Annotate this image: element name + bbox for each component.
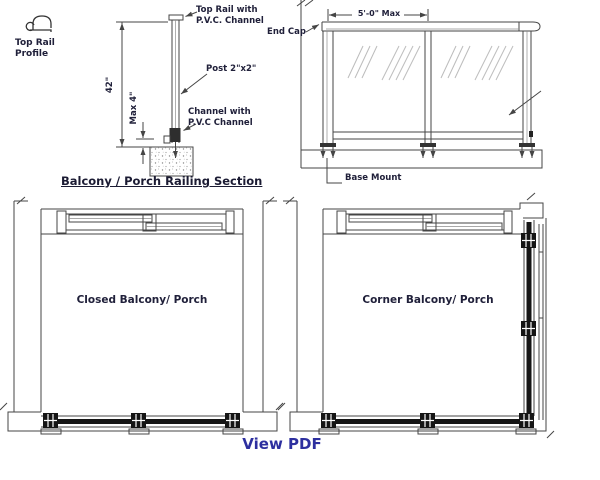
elevation-wall-and-deck [297,0,542,168]
post-callout: Post 2"x2" [206,64,276,75]
end-cap-callout: End Cap [252,27,306,38]
section-caption: Balcony / Porch Railing Section [61,174,262,188]
top-rail-profile-label: Top Rail Profile [15,38,63,61]
drawing-sheet: Top Rail Profile Top Rail with P.V.C. Ch… [0,0,600,480]
base-mount-callout: Base Mount [345,173,415,184]
section-dim-42 [116,22,168,147]
dim-bay-text: 5'-0" Max [338,9,420,18]
closed-balcony-label: Closed Balcony/ Porch [62,294,222,306]
closed-balcony-plan [0,197,285,434]
corner-balcony-label: Corner Balcony/ Porch [348,294,508,306]
elevation-posts [323,31,531,143]
plan2-right-railing [521,220,543,428]
plan2-sliding-door [337,211,512,233]
section-concrete-base [127,147,193,176]
plan2-deck-edge [276,218,554,438]
section-post [169,15,183,143]
elevation-top-rail [322,22,540,31]
dim-42-text: 42" [105,71,115,99]
channel-callout: Channel with P.V.C Channel [188,107,256,128]
corner-balcony-plan [276,193,554,438]
railing-elevation-drawing [297,0,542,183]
top-rail-callout: Top Rail with P.V.C. Channel [196,5,280,26]
dim-max4-text: Max 4" [129,90,139,126]
plan1-sliding-door [57,211,234,233]
view-pdf-link[interactable]: View PDF [236,435,328,453]
linework-svg [0,0,600,480]
elevation-leader-lines [306,25,541,184]
elevation-bottom-rail [333,131,533,139]
top-rail-profile-icon [26,16,51,32]
